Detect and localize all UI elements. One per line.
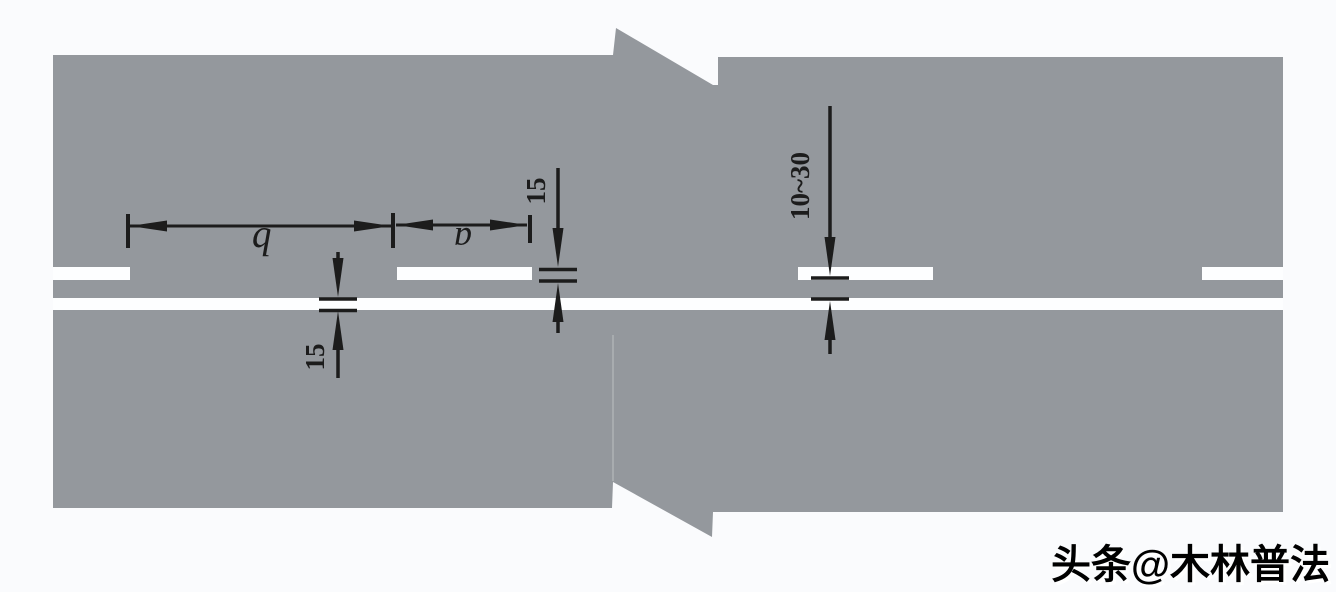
solid-lane-line <box>53 298 1283 310</box>
dash-segment-4 <box>1202 267 1283 280</box>
line-spacing-label: 10~30 <box>785 152 815 220</box>
figure-canvas: b a 15 15 <box>0 0 1336 592</box>
watermark: 头条@木林普法 头条@木林普法 <box>1051 543 1333 590</box>
dash-segment-1 <box>53 267 130 280</box>
segment-length-label: a <box>454 220 472 260</box>
solid-line-width-label: 15 <box>300 344 330 371</box>
watermark-text: 头条@木林普法 <box>1051 543 1330 587</box>
gap-length-label: b <box>252 220 272 265</box>
dash-segment-2 <box>397 267 532 280</box>
road-surface <box>53 28 1283 537</box>
dashed-line-width-label: 15 <box>521 178 551 205</box>
road-marking-diagram: b a 15 15 <box>0 0 1336 592</box>
